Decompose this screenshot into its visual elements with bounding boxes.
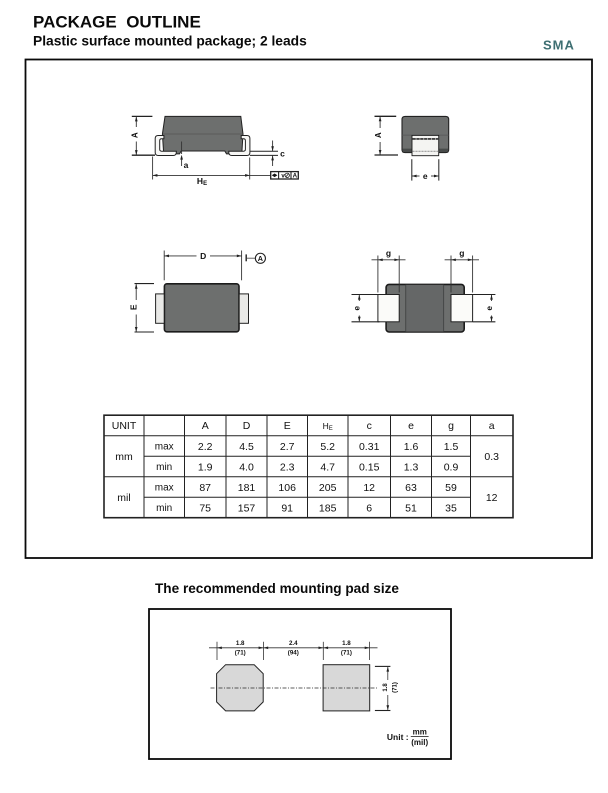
svg-text:c: c: [280, 148, 285, 158]
svg-text:181: 181: [238, 482, 256, 494]
svg-text:g: g: [386, 248, 391, 258]
svg-text:A: A: [374, 132, 383, 138]
svg-text:1.8: 1.8: [342, 640, 351, 647]
svg-text:Plastic surface mounted packag: Plastic surface mounted package; 2 leads: [33, 34, 307, 49]
svg-text:E: E: [284, 420, 291, 432]
svg-text:4.5: 4.5: [239, 441, 254, 453]
svg-text:63: 63: [405, 482, 417, 494]
svg-text:e: e: [423, 171, 428, 181]
svg-text:UNIT: UNIT: [112, 420, 137, 432]
svg-text:1.9: 1.9: [198, 462, 213, 474]
svg-text:A: A: [202, 420, 209, 432]
svg-text:5.2: 5.2: [320, 441, 335, 453]
svg-text:g: g: [448, 420, 454, 432]
svg-text:min: min: [156, 503, 172, 514]
svg-text:max: max: [155, 442, 174, 453]
svg-text:59: 59: [445, 482, 457, 494]
svg-text:(71): (71): [393, 682, 399, 693]
svg-text:c: c: [367, 420, 372, 432]
svg-text:185: 185: [319, 503, 337, 515]
svg-text:1.6: 1.6: [404, 441, 419, 453]
svg-text:1.5: 1.5: [444, 441, 459, 453]
svg-text:Unit :: Unit :: [387, 732, 409, 742]
svg-text:SMA: SMA: [543, 38, 575, 53]
svg-text:E: E: [129, 304, 139, 310]
svg-text:mm: mm: [413, 727, 427, 736]
svg-text:2.4: 2.4: [289, 640, 298, 647]
svg-text:4.7: 4.7: [320, 462, 335, 474]
svg-text:(94): (94): [288, 650, 299, 657]
svg-text:e: e: [352, 306, 362, 311]
svg-text:0.15: 0.15: [359, 462, 380, 474]
svg-text:(71): (71): [341, 650, 352, 657]
svg-text:(71): (71): [235, 650, 246, 657]
svg-text:D: D: [243, 420, 251, 432]
svg-text:4.0: 4.0: [239, 462, 254, 474]
svg-text:51: 51: [405, 503, 417, 515]
svg-text:mm: mm: [115, 451, 133, 463]
svg-text:6: 6: [366, 503, 372, 515]
svg-text:1.8: 1.8: [383, 683, 389, 692]
svg-text:205: 205: [319, 482, 337, 494]
svg-text:0.31: 0.31: [359, 441, 380, 453]
svg-text:12: 12: [486, 492, 498, 504]
svg-text:87: 87: [199, 482, 211, 494]
svg-text:2.3: 2.3: [280, 462, 295, 474]
svg-text:(mil): (mil): [411, 738, 428, 747]
svg-text:max: max: [155, 483, 174, 494]
svg-text:e: e: [484, 306, 494, 311]
svg-text:0.9: 0.9: [444, 462, 459, 474]
svg-text:106: 106: [278, 482, 296, 494]
svg-text:A: A: [258, 254, 263, 263]
svg-text:min: min: [156, 462, 172, 473]
svg-text:e: e: [408, 420, 414, 432]
svg-text:PACKAGE OUTLINE: PACKAGE OUTLINE: [33, 13, 201, 32]
svg-text:1.3: 1.3: [404, 462, 419, 474]
svg-text:157: 157: [238, 503, 256, 515]
svg-text:12: 12: [363, 482, 375, 494]
svg-text:mil: mil: [117, 492, 130, 504]
svg-text:2.7: 2.7: [280, 441, 295, 453]
svg-text:a: a: [489, 420, 495, 432]
svg-text:75: 75: [199, 503, 211, 515]
svg-text:g: g: [459, 248, 464, 258]
svg-text:The recommended mounting pad s: The recommended mounting pad size: [155, 581, 399, 596]
svg-text:A: A: [130, 132, 139, 138]
svg-text:2.2: 2.2: [198, 441, 213, 453]
svg-text:91: 91: [281, 503, 293, 515]
svg-text:a: a: [184, 160, 189, 170]
svg-text:35: 35: [445, 503, 457, 515]
svg-text:0.3: 0.3: [484, 451, 499, 463]
svg-text:1.8: 1.8: [236, 640, 245, 647]
svg-text:D: D: [200, 251, 206, 261]
svg-text:A: A: [293, 173, 298, 180]
